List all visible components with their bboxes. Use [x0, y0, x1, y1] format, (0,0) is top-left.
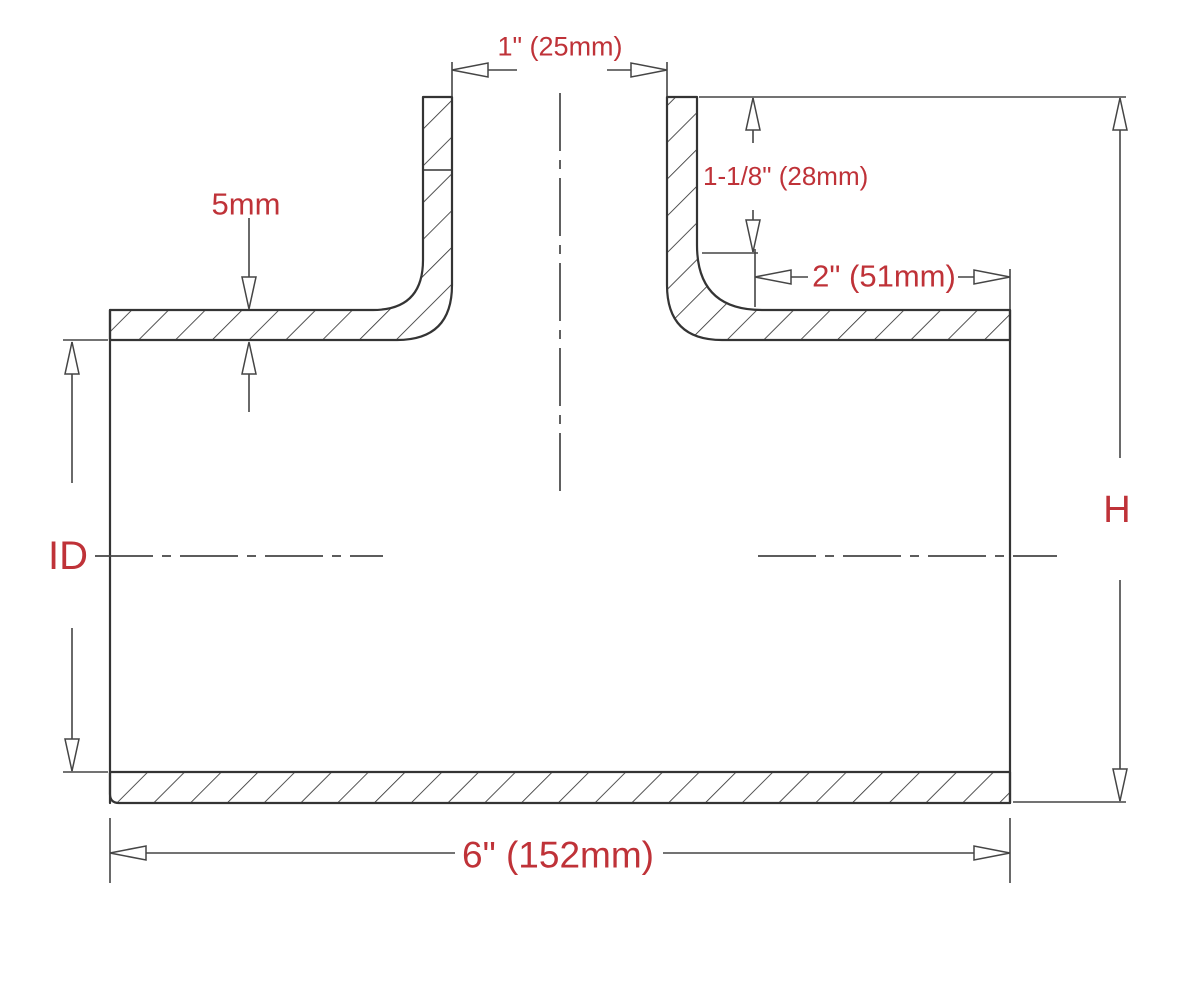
technical-drawing-page: 1" (25mm) 1-1/8" (28mm) 5mm 2" (51mm) ID… [0, 0, 1197, 1002]
upper-left-wall-section [110, 97, 452, 340]
right-leg-length-label: 2" (51mm) [812, 261, 956, 292]
bottom-wall-section [110, 772, 1010, 803]
arrowhead-up [746, 98, 760, 130]
arrowhead-left [452, 63, 488, 77]
arrowhead-down [746, 220, 760, 252]
arrowhead-up [242, 342, 256, 374]
overall-height-label: H [1103, 491, 1130, 529]
dim-overall-height [1013, 98, 1127, 802]
arrowhead-down [242, 277, 256, 309]
wall-thickness-label: 5mm [212, 189, 281, 220]
arrowhead-down [65, 739, 79, 771]
branch-depth-label: 1-1/8" (28mm) [703, 163, 868, 189]
upper-right-wall-section [667, 97, 1010, 340]
overall-length-label: 6" (152mm) [462, 837, 654, 874]
arrowhead-up [65, 342, 79, 374]
arrowhead-right [974, 270, 1010, 284]
arrowhead-down [1113, 769, 1127, 801]
arrowhead-left [110, 846, 146, 860]
arrowhead-right [974, 846, 1010, 860]
arrowhead-right [631, 63, 667, 77]
dim-branch-inner-diameter [452, 62, 667, 96]
inner-diameter-label: ID [48, 536, 88, 576]
branch-inner-diameter-label: 1" (25mm) [497, 34, 622, 61]
arrowhead-left [755, 270, 791, 284]
arrowhead-up [1113, 98, 1127, 130]
